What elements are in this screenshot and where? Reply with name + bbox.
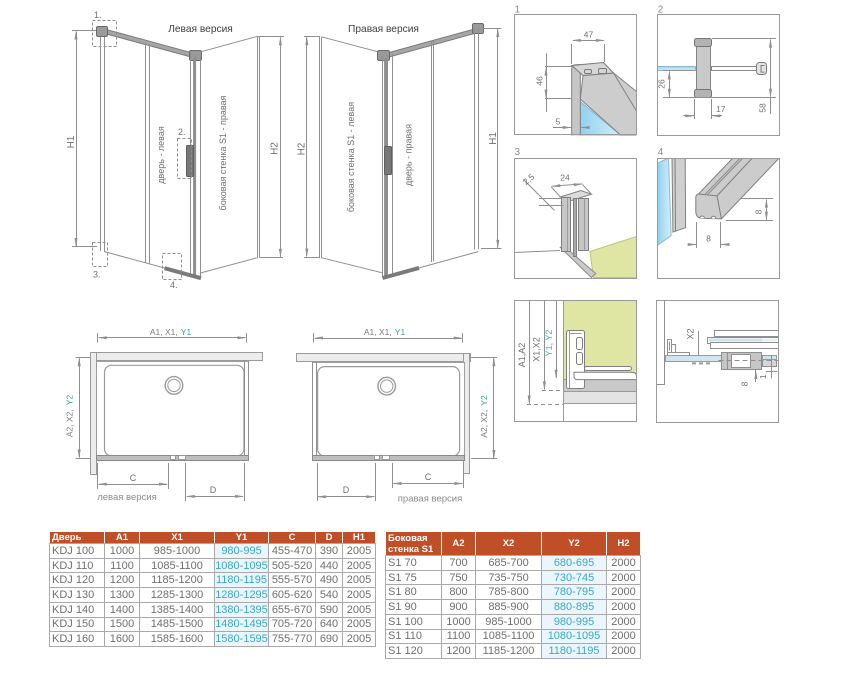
svg-text:левая версия: левая версия (97, 492, 157, 503)
svg-text:4.: 4. (170, 280, 178, 290)
svg-text:H2: H2 (269, 142, 280, 155)
svg-text:8: 8 (740, 381, 750, 386)
svg-text:1: 1 (515, 5, 521, 16)
svg-text:A1, X1,: A1, X1, (364, 327, 394, 337)
svg-text:3.: 3. (93, 270, 101, 280)
svg-text:D: D (343, 485, 350, 495)
svg-text:3: 3 (515, 147, 521, 158)
svg-text:Правая версия: Правая версия (348, 24, 419, 35)
svg-text:A2, X2,: A2, X2, (479, 407, 489, 437)
svg-text:5: 5 (556, 117, 561, 127)
svg-text:C: C (130, 473, 137, 483)
svg-text:4: 4 (658, 147, 664, 158)
svg-text:A2, X2,: A2, X2, (65, 407, 75, 437)
svg-text:D: D (210, 485, 217, 495)
svg-text:C: C (425, 472, 432, 482)
svg-text:X2: X2 (686, 328, 696, 339)
svg-text:правая версия: правая версия (398, 494, 462, 505)
svg-text:2: 2 (658, 5, 664, 16)
svg-text:17: 17 (716, 104, 726, 114)
svg-text:Y1, Y2: Y1, Y2 (544, 330, 554, 357)
svg-text:46: 46 (535, 76, 545, 86)
svg-text:X1,X2: X1,X2 (531, 337, 541, 362)
svg-text:47: 47 (584, 30, 594, 40)
svg-text:A1, X1,: A1, X1, (150, 327, 180, 337)
svg-text:1.: 1. (94, 10, 102, 20)
svg-text:2,5: 2,5 (521, 171, 537, 186)
svg-text:2.: 2. (178, 127, 186, 137)
svg-text:8: 8 (706, 234, 711, 244)
svg-text:Y2: Y2 (479, 395, 489, 406)
svg-text:H1: H1 (66, 135, 77, 148)
svg-text:58: 58 (758, 103, 768, 113)
svg-text:Y1: Y1 (395, 327, 406, 337)
svg-text:дверь - левая: дверь - левая (156, 126, 166, 184)
svg-text:Y1: Y1 (181, 327, 192, 337)
svg-text:H2: H2 (296, 142, 307, 155)
svg-text:A1,A2: A1,A2 (517, 343, 527, 368)
svg-text:1: 1 (758, 374, 768, 379)
svg-text:боковая стенка S1 - левая: боковая стенка S1 - левая (346, 102, 356, 212)
svg-text:Левая версия: Левая версия (168, 24, 233, 35)
svg-text:8: 8 (754, 209, 764, 214)
svg-text:боковая стенка S1 - правая: боковая стенка S1 - правая (218, 95, 228, 210)
svg-text:24: 24 (560, 173, 570, 183)
svg-text:Y2: Y2 (65, 395, 75, 406)
svg-text:H1: H1 (488, 132, 499, 145)
svg-text:дверь - правая: дверь - правая (404, 124, 414, 186)
